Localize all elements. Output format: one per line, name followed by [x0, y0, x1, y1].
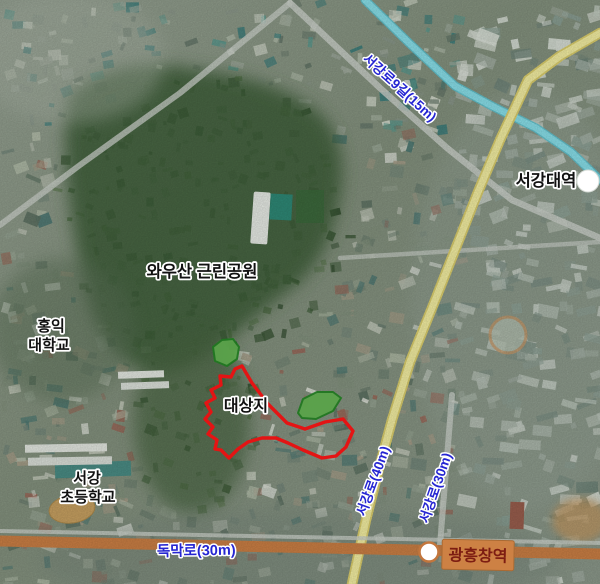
- university-label-line1: 홍익: [37, 317, 65, 335]
- elementary-label-line2: 초등학교: [60, 489, 115, 506]
- park-label: 와우산 근린공원: [147, 262, 258, 281]
- road-label-dongmakro: 독막로(30m): [157, 541, 236, 560]
- university-label-line2: 대학교: [28, 337, 70, 354]
- site-label: 대상지: [224, 397, 268, 415]
- station-label-gwangheungchang: 광흥창역: [448, 545, 507, 565]
- station-badge-gwangheungchang: 광흥창역: [442, 539, 515, 571]
- satellite-map: 광흥창역 와우산 근린공원 홍익 대학교 대상지 서강 초등학교 서강대역 서강…: [0, 0, 600, 584]
- elementary-label-line1: 서강: [73, 469, 101, 487]
- station-marker-seogangdae: [577, 170, 599, 192]
- map-canvas: 광흥창역 와우산 근린공원 홍익 대학교 대상지 서강 초등학교 서강대역 서강…: [0, 0, 600, 584]
- station-label-seogangdae: 서강대역: [516, 171, 577, 190]
- station-marker-gwangheungchang: [420, 543, 439, 562]
